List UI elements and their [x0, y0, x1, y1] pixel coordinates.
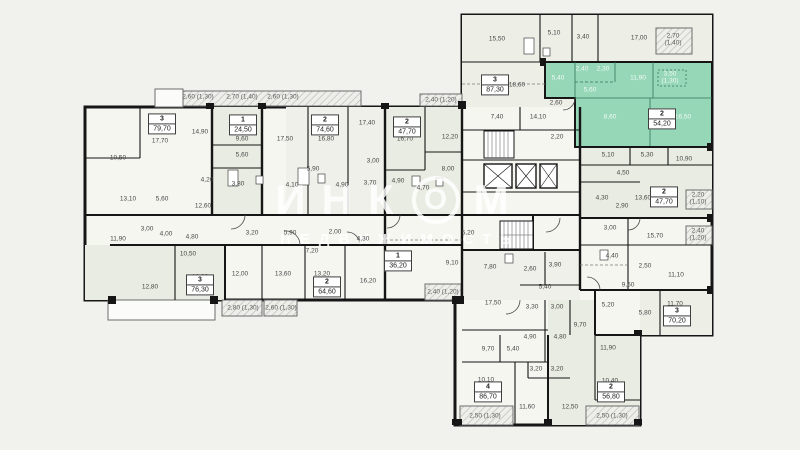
room-area-label: 8,60: [604, 113, 617, 120]
room-area-label: 13,60: [635, 194, 651, 201]
apartment-unit-label: 387,30: [481, 74, 509, 95]
room-area-label: 5,40: [539, 283, 552, 290]
room-area-label: 16,20: [360, 277, 376, 284]
apartment-unit-label: 274,60: [311, 114, 339, 135]
apartment-unit-label: 370,20: [663, 305, 691, 326]
room-area-label: 12,60: [195, 202, 211, 209]
room-area-label: 9,70: [482, 345, 495, 352]
room-area-label: 3,20: [530, 365, 543, 372]
room-area-label: 4,90: [392, 177, 405, 184]
room-area-label: 7,40: [491, 113, 504, 120]
apartment-unit-label: 264,60: [313, 276, 341, 297]
room-area-label: 17,40: [359, 119, 375, 126]
room-area-label: 3,00: [604, 224, 617, 231]
balcony-dimension-label: 2,80 (1,30): [227, 304, 258, 311]
room-area-label: 4,10: [286, 181, 299, 188]
room-area-label: 4,30: [357, 235, 370, 242]
room-area-label: 5,90: [307, 165, 320, 172]
room-area-label: 17,50: [485, 299, 501, 306]
room-area-label: 15,50: [489, 35, 505, 42]
room-area-label: 12,00: [232, 270, 248, 277]
room-area-label: 5,10: [602, 151, 615, 158]
apartment-unit-label: 256,80: [597, 381, 625, 402]
balcony-dimension-label: 2,40 (1,20): [427, 288, 458, 295]
apartment-unit-label: 486,70: [474, 381, 502, 402]
room-area-label: 18,60: [509, 81, 525, 88]
room-area-label: 10,50: [180, 250, 196, 257]
room-area-label: 3,20: [246, 229, 259, 236]
room-area-label: 7,80: [484, 263, 497, 270]
room-area-label: 17,00: [631, 34, 647, 41]
balcony-dimension-label: 2,40 (1,20): [690, 228, 707, 243]
room-area-label: 3,40: [577, 33, 590, 40]
room-area-label: 3,00: [141, 225, 154, 232]
room-area-label: 2,50: [639, 262, 652, 269]
apartment-unit-label: 254,20: [648, 108, 676, 129]
room-area-label: 2,40: [576, 65, 589, 72]
labels-layer: 10,5017,7014,9013,105,609,605,603,804,20…: [0, 0, 800, 450]
room-area-label: 4,40: [606, 252, 619, 259]
room-area-label: 11,90: [110, 235, 126, 242]
room-area-label: 2,90: [616, 202, 629, 209]
room-area-label: 5,30: [641, 151, 654, 158]
balcony-dimension-label: 2,60 (1,30): [182, 93, 213, 100]
room-area-label: 11,60: [519, 403, 535, 410]
room-area-label: 5,60: [236, 151, 249, 158]
room-area-label: 12,50: [562, 403, 578, 410]
balcony-dimension-label: 2,20 (1,10): [690, 192, 707, 207]
room-area-label: 17,50: [277, 135, 293, 142]
apartment-unit-label: 247,70: [650, 186, 678, 207]
room-area-label: 11,10: [668, 271, 684, 278]
room-area-label: 12,20: [442, 133, 458, 140]
room-area-label: 10,50: [110, 154, 126, 161]
apartment-unit-label: 379,70: [148, 113, 176, 134]
room-area-label: 5,20: [462, 229, 475, 236]
room-area-label: 16,50: [675, 113, 691, 120]
room-area-label: 16,80: [318, 135, 334, 142]
room-area-label: 5,80: [639, 309, 652, 316]
room-area-label: 4,20: [201, 176, 214, 183]
room-area-label: 3,00: [367, 157, 380, 164]
balcony-dimension-label: 2,60 (1,30): [265, 304, 296, 311]
room-area-label: 5,60: [584, 86, 597, 93]
apartment-unit-label: 136,20: [384, 250, 412, 271]
room-area-label: 4,90: [524, 333, 537, 340]
room-area-label: 9,60: [622, 281, 635, 288]
room-area-label: 9,60: [236, 135, 249, 142]
balcony-dimension-label: 2,70 (1,40): [665, 33, 682, 48]
room-area-label: 3,30: [526, 303, 539, 310]
room-area-label: 5,60: [156, 195, 169, 202]
balcony-dimension-label: 2,50 (1,30): [469, 412, 500, 419]
room-area-label: 5,10: [548, 29, 561, 36]
room-area-label: 11,90: [600, 344, 616, 351]
room-area-label: 3,80: [232, 180, 245, 187]
balcony-dimension-label: 2,50 (1,30): [596, 412, 627, 419]
room-area-label: 13,60: [275, 270, 291, 277]
room-area-label: 8,00: [442, 165, 455, 172]
balcony-dimension-label: 2,60 (1,30): [267, 93, 298, 100]
room-area-label: 12,80: [142, 283, 158, 290]
balcony-dimension-label: 2,40 (1,20): [425, 96, 456, 103]
room-area-label: 4,80: [554, 333, 567, 340]
apartment-unit-label: 376,30: [186, 274, 214, 295]
room-area-label: 11,90: [630, 74, 646, 81]
room-area-label: 2,30: [597, 65, 610, 72]
room-area-label: 17,70: [152, 137, 168, 144]
room-area-label: 9,70: [574, 321, 587, 328]
room-area-label: 4,00: [160, 230, 173, 237]
floor-plan: ИНК О М НЕДВИЖИМОСТЬ 10,5017,7014,9013,1…: [0, 0, 800, 450]
balcony-dimension-label: 3,50 (1,30): [662, 71, 679, 86]
room-area-label: 14,90: [192, 128, 208, 135]
room-area-label: 4,70: [417, 184, 430, 191]
balcony-dimension-label: 2,70 (1,40): [226, 93, 257, 100]
room-area-label: 5,40: [552, 74, 565, 81]
room-area-label: 14,10: [530, 113, 546, 120]
room-area-label: 3,70: [364, 179, 377, 186]
apartment-unit-label: 124,50: [229, 114, 257, 135]
room-area-label: 3,90: [549, 261, 562, 268]
apartment-unit-label: 247,70: [393, 116, 421, 137]
room-area-label: 4,50: [617, 169, 630, 176]
room-area-label: 4,90: [336, 181, 349, 188]
room-area-label: 5,40: [507, 345, 520, 352]
room-area-label: 2,60: [550, 99, 563, 106]
room-area-label: 15,70: [647, 232, 663, 239]
room-area-label: 7,20: [306, 247, 319, 254]
room-area-label: 9,10: [446, 259, 459, 266]
room-area-label: 5,20: [602, 301, 615, 308]
room-area-label: 13,10: [120, 195, 136, 202]
room-area-label: 4,80: [186, 233, 199, 240]
room-area-label: 3,00: [551, 303, 564, 310]
room-area-label: 2,00: [329, 228, 342, 235]
room-area-label: 10,90: [676, 155, 692, 162]
room-area-label: 3,20: [551, 365, 564, 372]
room-area-label: 2,20: [551, 133, 564, 140]
room-area-label: 4,30: [596, 194, 609, 201]
room-area-label: 2,60: [524, 265, 537, 272]
room-area-label: 5,90: [284, 229, 297, 236]
